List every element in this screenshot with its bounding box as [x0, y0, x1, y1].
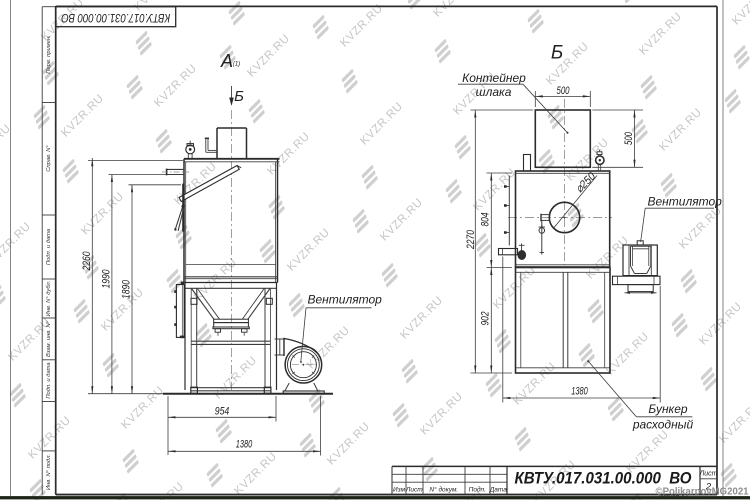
svg-text:шлака: шлака — [476, 85, 512, 99]
svg-text:(1): (1) — [233, 62, 240, 68]
svg-text:Взам. инв. N°: Взам. инв. N° — [46, 320, 52, 357]
svg-text:Лист: Лист — [698, 471, 717, 478]
svg-text:Вентилятор: Вентилятор — [648, 195, 723, 209]
svg-text:Б: Б — [234, 88, 244, 105]
svg-text:1990: 1990 — [101, 269, 113, 289]
svg-text:2260: 2260 — [81, 251, 93, 271]
svg-text:1380: 1380 — [571, 385, 588, 397]
svg-text:1890: 1890 — [121, 279, 133, 299]
svg-text:500: 500 — [623, 132, 635, 145]
svg-text:Б: Б — [551, 43, 563, 64]
svg-text:Дата: Дата — [489, 486, 508, 493]
svg-text:Подп.: Подп. — [469, 485, 486, 493]
svg-text:Справ. N°: Справ. N° — [46, 145, 52, 172]
svg-text:расходный: расходный — [632, 418, 694, 432]
svg-text:Вентилятор: Вентилятор — [308, 293, 383, 307]
svg-text:Инв. N° подл.: Инв. N° подл. — [46, 454, 52, 490]
svg-text:902: 902 — [480, 311, 492, 326]
svg-text:Перв. примен.: Перв. примен. — [46, 35, 52, 74]
svg-text:Изм: Изм — [393, 486, 406, 493]
svg-text:Подп. и дата: Подп. и дата — [46, 228, 52, 265]
svg-text:А: А — [220, 51, 233, 71]
svg-text:804: 804 — [480, 213, 492, 227]
svg-text:Контейнер: Контейнер — [462, 71, 526, 85]
svg-text:Подп. и дата: Подп. и дата — [46, 362, 52, 399]
svg-text:954: 954 — [215, 406, 230, 418]
svg-text:Бункер: Бункер — [648, 402, 687, 416]
svg-text:КВТУ.017.031.00.000 ВО: КВТУ.017.031.00.000 ВО — [515, 470, 692, 488]
svg-text:Лист: Лист — [405, 486, 423, 493]
svg-text:N° докум.: N° докум. — [429, 485, 458, 493]
svg-text:500: 500 — [557, 85, 570, 97]
svg-text:Инв. N° дубл.: Инв. N° дубл. — [46, 281, 52, 317]
svg-text:КВТУ.017.031.00.000 ВО: КВТУ.017.031.00.000 ВО — [61, 11, 170, 23]
svg-text:1380: 1380 — [236, 439, 253, 451]
svg-text:2270: 2270 — [465, 229, 477, 249]
